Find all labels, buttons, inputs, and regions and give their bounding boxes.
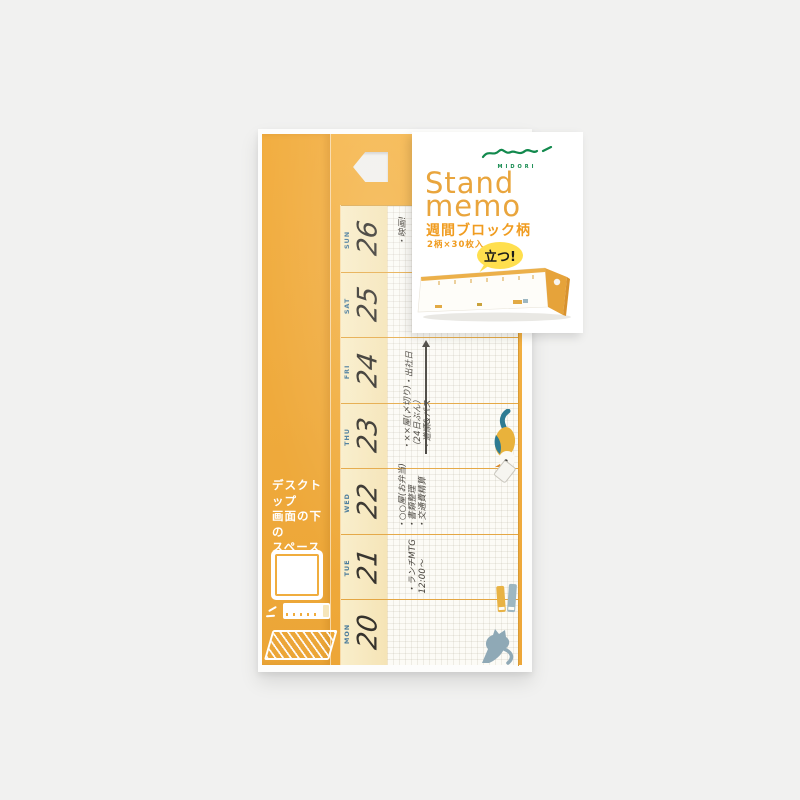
note-line: ・○○屋(お弁当): [398, 463, 408, 529]
midori-squiggle-icon: [475, 146, 559, 160]
day-abbr-label: FRI: [343, 364, 351, 379]
books-illustration: [496, 582, 518, 614]
date-number: 25: [353, 285, 384, 324]
side-text-line: デスクトップ: [272, 478, 330, 509]
product-photo: [415, 265, 579, 323]
day-abbr-label: SUN: [343, 231, 351, 249]
keyboard-illustration: [264, 630, 338, 660]
day-cell: SAT 25: [341, 273, 387, 338]
handwritten-note: ・出社日: [405, 351, 415, 386]
note-line: （24日ぶん）: [413, 385, 423, 450]
handwritten-note: ・××屋(〆切り) （24日ぶん） ・道順&バス: [403, 385, 433, 450]
memo-dashes: [286, 613, 320, 616]
label-card: MIDORI Stand memo 週間ブロック柄 2柄×30枚入 立つ!: [412, 132, 583, 333]
day-cell: TUE 21: [341, 535, 387, 600]
date-number: 22: [353, 481, 384, 520]
note-line: ・ランチMTG: [408, 539, 418, 594]
day-abbr-label: TUE: [343, 560, 351, 577]
memo-side-tab: [323, 605, 329, 617]
day-abbr-label: THU: [343, 428, 351, 446]
date-number: 24: [353, 350, 384, 389]
day-abbr-label: WED: [343, 493, 351, 513]
monitor-screen: [275, 554, 319, 596]
sparkle-icon: [268, 606, 277, 612]
note-line: ・××屋(〆切り): [403, 385, 413, 450]
day-cell: SUN 26: [341, 206, 387, 272]
card-illustration: [494, 459, 516, 487]
date-number: 23: [353, 416, 384, 455]
day-cell: THU 23: [341, 404, 387, 469]
handwritten-note: ・ランチMTG 12:00〜: [408, 539, 428, 594]
monitor-illustration: [271, 550, 323, 600]
product-title: Stand memo: [425, 172, 521, 218]
day-cell: WED 22: [341, 469, 387, 534]
note-line: ・書類整理: [408, 463, 418, 529]
day-row-tue: TUE 21 ・ランチMTG 12:00〜: [341, 534, 518, 600]
note-line: ・交通費精算: [418, 463, 428, 529]
photo-background: デスクトップ 画面の下の スペースを 活用!: [0, 0, 800, 800]
day-abbr-label: MON: [343, 624, 351, 644]
day-abbr-label: SAT: [343, 298, 351, 314]
hang-hole: [353, 152, 388, 182]
day-cell: MON 20: [341, 600, 387, 665]
handwritten-note: ・○○屋(お弁当) ・書類整理 ・交通費精算: [398, 463, 428, 529]
sparkle-icon: [266, 615, 275, 618]
date-number: 21: [353, 547, 384, 586]
date-number: 20: [353, 613, 384, 652]
side-panel: デスクトップ 画面の下の スペースを 活用!: [262, 134, 331, 665]
stand-memo-mini-illustration: [283, 603, 330, 619]
note-line: ・出社日: [405, 351, 415, 386]
day-row-wed: WED 22 ・○○屋(お弁当) ・書類整理 ・交通費精算: [341, 468, 518, 534]
product-spec: 2柄×30枚入: [427, 238, 484, 250]
title-line: memo: [425, 195, 521, 218]
arrow-annotation: [425, 346, 427, 454]
note-line: 12:00〜: [418, 539, 428, 594]
day-cell: FRI 24: [341, 338, 387, 403]
note-line: ・映画!: [398, 216, 408, 246]
cat-illustration: [476, 627, 516, 665]
product-subtitle: 週間ブロック柄: [426, 220, 531, 240]
side-text-line: 画面の下の: [272, 509, 330, 540]
date-number: 26: [353, 219, 384, 258]
handwritten-note: ・映画!: [398, 216, 408, 246]
